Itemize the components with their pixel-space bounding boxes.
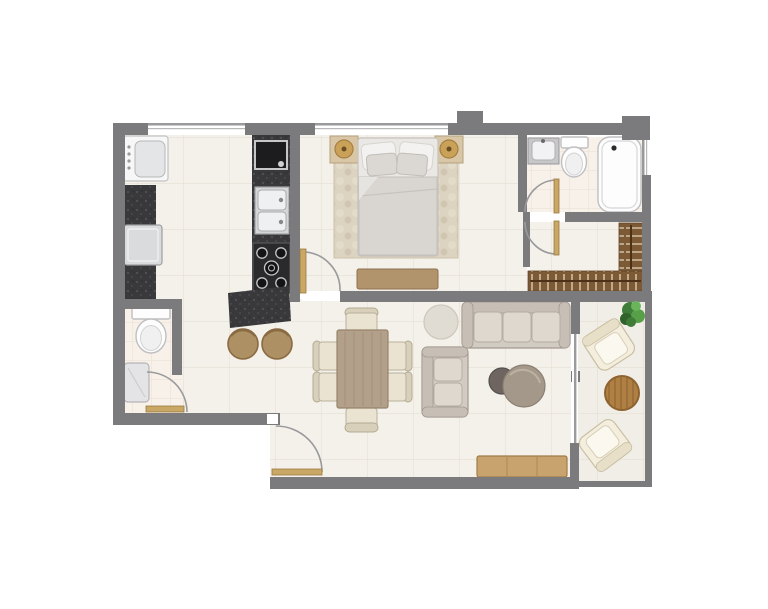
wall-pillar-a (457, 111, 483, 135)
two-seat-sofa (422, 347, 468, 417)
dining-chair-right-1 (386, 342, 406, 370)
wall-right-closet (642, 212, 651, 298)
lamp-left-center (342, 147, 347, 152)
bedroom-window (315, 123, 448, 135)
wall-kitchen-bedroom (290, 135, 300, 302)
sofa-cushion-1 (474, 312, 502, 342)
floor-plan (0, 0, 768, 609)
bathtub (598, 137, 641, 212)
dining-chair-right-2 (386, 373, 406, 401)
wall-guest-bath-right (172, 299, 182, 375)
balcony-rail-right (645, 298, 652, 487)
wall-bedroom-south (340, 291, 652, 302)
balcony-rail-bottom (577, 481, 652, 487)
entry-door-frame (267, 414, 278, 424)
loveseat-arm-bottom (422, 407, 468, 417)
dining-chair-left-2 (319, 373, 339, 401)
wall-bedroom-closet (523, 212, 530, 267)
wall-living-bottom (270, 477, 577, 489)
vanity-faucet (541, 139, 545, 143)
wall-pillar-b (622, 116, 650, 140)
loveseat-cushion-1 (434, 358, 462, 381)
sofa-arm-left (462, 302, 473, 348)
washing-machine-door (135, 141, 165, 177)
pillow-front-left (366, 153, 398, 177)
outdoor-round-table (605, 376, 639, 410)
lamp-right-center (447, 147, 452, 152)
wall-bathroom-bottom (565, 212, 651, 222)
bed-duvet (359, 177, 437, 255)
loveseat-back (422, 347, 433, 417)
island-counter (228, 286, 291, 328)
double-sink (255, 187, 289, 234)
dining-chair-left-1 (319, 342, 339, 370)
sofa-back (462, 302, 570, 313)
sofa-cushion-2 (503, 312, 531, 342)
wall-top-mid (245, 123, 315, 135)
bathtub-drain (611, 145, 616, 150)
loveseat-cushion-2 (434, 383, 462, 406)
wall-left (113, 123, 125, 425)
kitchen-window (148, 123, 245, 135)
foot-bench (357, 269, 438, 289)
sofa-cushion-3 (532, 312, 560, 342)
dining-chair-bottom-back (345, 423, 378, 432)
refrigerator (124, 225, 162, 265)
wall-right-bathroom (642, 173, 651, 213)
vanity-basin (532, 141, 555, 160)
ensuite-toilet-seat (566, 153, 583, 175)
sofa-arm-right (559, 302, 570, 348)
round-rug (424, 305, 458, 339)
guest-toilet-seat (141, 326, 162, 351)
wall-bedroom-bathroom (518, 135, 527, 212)
pillow-front-right (396, 153, 428, 177)
dining-chair-top (346, 313, 377, 332)
wall-bottom-left (113, 413, 280, 425)
wall-guest-bath-top (113, 299, 182, 309)
floor-plan-canvas (0, 0, 768, 609)
media-console (477, 456, 567, 477)
coffee-table-large (503, 365, 545, 407)
bar-stool-2 (262, 329, 292, 359)
loveseat-arm-top (422, 347, 468, 357)
balcony-sliding-door (572, 334, 578, 443)
bathroom-window (642, 140, 651, 175)
stove (253, 243, 290, 293)
three-seat-sofa (462, 302, 570, 348)
counter-appliance-knob (278, 161, 284, 167)
bar-stool-1 (228, 329, 258, 359)
wall-balcony-partition-top (571, 301, 580, 334)
